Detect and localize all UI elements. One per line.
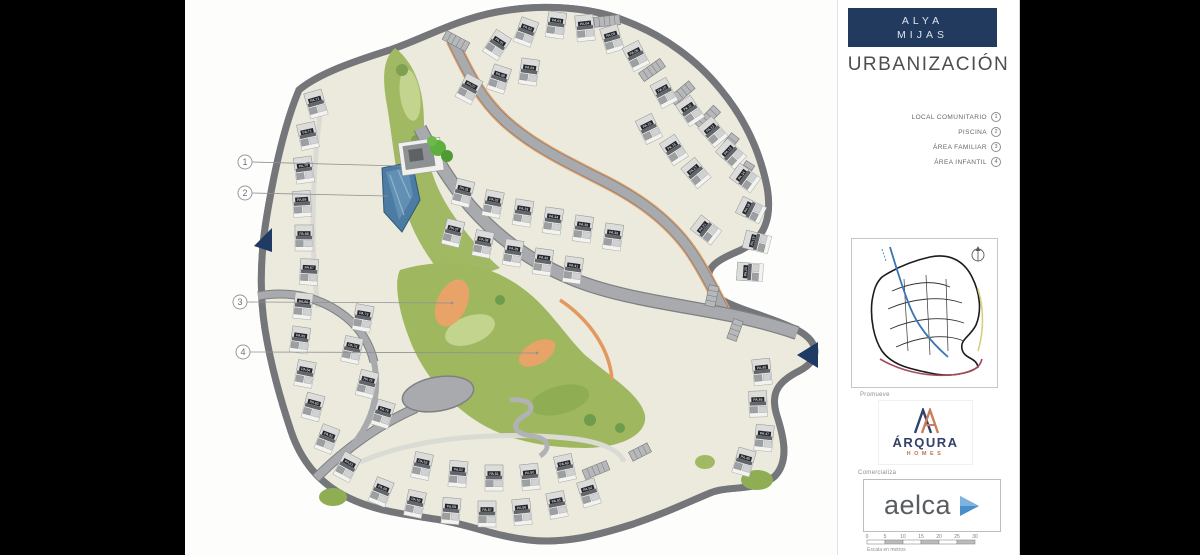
promoter-label: Promueve	[860, 392, 890, 398]
brochure-page: PA.72PA.71PA.70PA.69PA.68PA.67PA.66PA.65…	[185, 0, 1018, 555]
seller-name: aelca	[884, 490, 951, 521]
plot: PA.04	[575, 14, 596, 42]
north-compass-icon	[972, 246, 984, 261]
project-name: ALYA	[902, 15, 943, 27]
plot: PA.46	[749, 391, 768, 418]
plot-label: PA.57	[482, 508, 491, 512]
scale-bar: 0 5 10 15 20 25 30 Escala en metros	[862, 533, 992, 553]
svg-text:4: 4	[240, 347, 245, 357]
plot: PA.56	[512, 498, 533, 526]
page-title: URBANIZACIÓN	[838, 54, 1019, 76]
plot-label: PA.51	[489, 472, 498, 476]
svg-text:0: 0	[866, 534, 869, 540]
legend-item-local-comunitario: LOCAL COMUNITARIO 1	[912, 112, 1001, 122]
plot-label: PA.58	[447, 504, 457, 509]
plot: PA.65	[289, 326, 310, 354]
svg-text:15: 15	[918, 534, 924, 540]
plot: PA.58	[441, 497, 461, 524]
svg-text:30: 30	[972, 534, 978, 540]
plot: PA.09	[518, 58, 539, 86]
site-plan: PA.72PA.71PA.70PA.69PA.68PA.67PA.66PA.65…	[185, 0, 837, 555]
plot: PA.33	[512, 199, 534, 227]
promoter-name: ÁRQURA	[892, 435, 958, 450]
legend-item-area-familiar: ÁREA FAMILIAR 3	[912, 142, 1001, 152]
legend-item-piscina: PISCINA 2	[912, 127, 1001, 137]
slide-viewer: { "sidebar": { "brand": {"line1": "ALYA"…	[0, 0, 1200, 555]
plot: PA.66	[293, 292, 314, 320]
plot: PA.45	[752, 358, 773, 386]
arqura-monogram-icon	[909, 408, 943, 434]
aelca-logo: aelca	[863, 479, 1001, 532]
info-panel: ALYA MIJAS URBANIZACIÓN LOCAL COMUNITARI…	[837, 0, 1020, 555]
scale-caption: Escala en metros	[867, 547, 906, 553]
promoter-sub: HOMES	[907, 451, 945, 457]
seller-label: Comercializa	[858, 470, 896, 476]
plot: PA.35	[572, 215, 593, 243]
legend: LOCAL COMUNITARIO 1 PISCINA 2 ÁREA FAMIL…	[912, 112, 1001, 172]
plot-label: PA.68	[299, 232, 308, 236]
plot: PA.36	[602, 223, 623, 251]
plot: PA.41	[562, 256, 583, 284]
plot: PA.39	[502, 239, 524, 267]
plot: PA.20	[736, 262, 763, 282]
plot-label: PA.46	[753, 398, 762, 402]
plot: PA.68	[295, 225, 313, 251]
plot-label: PA.20	[743, 267, 748, 277]
plot: PA.57	[478, 501, 496, 527]
plot: PA.67	[299, 259, 318, 286]
aelca-play-icon	[958, 494, 980, 518]
legend-item-area-infantil: ÁREA INFANTIL 4	[912, 157, 1001, 167]
plot: PA.34	[542, 207, 563, 235]
svg-text:1: 1	[242, 157, 247, 167]
project-location: MIJAS	[897, 29, 948, 41]
plot: PA.47	[754, 424, 775, 452]
location-inset-map	[851, 238, 998, 388]
svg-text:5: 5	[884, 534, 887, 540]
svg-text:3: 3	[237, 297, 242, 307]
plot: PA.52	[448, 460, 468, 487]
plot-label: PA.52	[454, 467, 464, 472]
plot: PA.70	[293, 156, 314, 184]
callout-bubbles: 1 2 3 4	[233, 155, 252, 359]
svg-text:10: 10	[900, 534, 906, 540]
svg-text:20: 20	[936, 534, 942, 540]
svg-text:25: 25	[954, 534, 960, 540]
plot-label: PA.67	[304, 266, 314, 270]
plot: PA.03	[545, 11, 566, 39]
project-logo: ALYA MIJAS	[848, 8, 997, 47]
plot-label: PA.69	[297, 197, 307, 202]
svg-text:2: 2	[242, 188, 247, 198]
plot: PA.50	[520, 463, 541, 491]
plot: PA.40	[532, 248, 553, 276]
arqura-homes-logo: ÁRQURA HOMES	[878, 400, 973, 465]
plot: PA.51	[485, 465, 503, 491]
